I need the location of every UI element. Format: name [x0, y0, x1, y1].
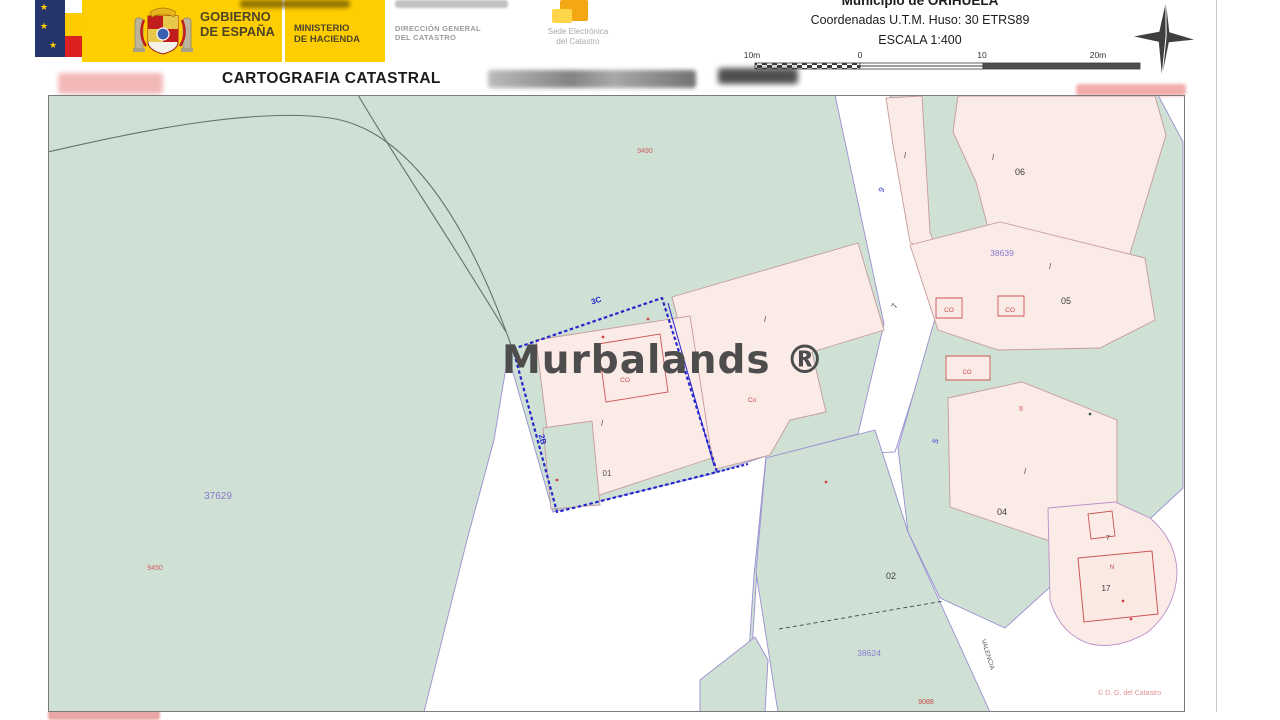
- star-icon: ★: [49, 41, 57, 50]
- map-marker-dot: [647, 318, 650, 321]
- coordinates-line: Coordenadas U.T.M. Huso: 30 ETRS89: [740, 13, 1100, 27]
- redaction-strip: [395, 0, 508, 8]
- scale-tick: 0: [858, 50, 863, 60]
- eu-flag-fragment: ★ ★ ★: [35, 0, 65, 57]
- spain-coat-of-arms: [132, 2, 194, 62]
- redaction-pink: [58, 73, 163, 94]
- star-icon: ★: [40, 3, 48, 12]
- map-marker-dot: [556, 479, 559, 482]
- map-label: 04: [997, 507, 1007, 517]
- document-title: CARTOGRAFIA CATASTRAL: [222, 70, 441, 88]
- watermark: Murbalands ®: [502, 338, 825, 383]
- municipio-title: Municipio de ORIHUELA: [740, 0, 1100, 8]
- map-label: CO: [963, 370, 972, 376]
- star-icon: ★: [40, 22, 48, 31]
- map-label: 05: [1061, 296, 1071, 306]
- flag-red-square: [65, 36, 82, 57]
- flag-yellow-square: [65, 13, 82, 36]
- ministerio-text: MINISTERIO DE HACIENDA: [294, 23, 360, 45]
- gobierno-espana-logo: ★ ★ ★ GOBIERNO DE ESPAÑA MINISTERIO: [35, 0, 385, 62]
- map-label: 17: [1102, 584, 1111, 593]
- logo-yellow-panel: GOBIERNO DE ESPAÑA MINISTERIO DE HACIEND…: [82, 0, 385, 62]
- scale-tick: 20m: [1090, 50, 1107, 60]
- map-label: 01: [603, 469, 612, 478]
- map-marker-dot: [825, 481, 828, 484]
- cadastral-map: 3762938639386240605040201177949094509088…: [48, 95, 1185, 712]
- building-17-outline: [1078, 551, 1158, 622]
- scale-line: ESCALA 1:400: [740, 33, 1100, 47]
- sede-logo-icon-overlay: [552, 9, 572, 23]
- map-label: CO: [944, 307, 954, 314]
- redaction-gray: [488, 70, 696, 88]
- sede-text: Sede Electrónica del Catastro: [528, 27, 628, 47]
- map-attribution: © D. G. del Catastro: [1098, 690, 1161, 697]
- map-label: 38639: [990, 248, 1014, 258]
- map-label: 9490: [637, 148, 653, 155]
- sede-electronica-block: Sede Electrónica del Catastro: [528, 0, 628, 60]
- map-marker-dot: [1089, 413, 1092, 416]
- cadastral-document-page: { "header": { "gobierno_line1": "GOBIERN…: [0, 0, 1280, 720]
- map-label: Co: [748, 397, 757, 404]
- map-label: 37629: [204, 491, 232, 502]
- scale-tick: 10m: [744, 50, 761, 60]
- map-label: 7: [1106, 535, 1110, 542]
- gobierno-text: GOBIERNO DE ESPAÑA: [200, 9, 275, 39]
- map-label: 9450: [147, 565, 163, 572]
- map-label: 38624: [857, 648, 881, 658]
- map-label: II: [1019, 406, 1023, 413]
- selected-parcel-courtyard: [543, 421, 600, 509]
- map-label: CO: [1005, 307, 1015, 314]
- map-label: 06: [1015, 167, 1025, 177]
- logo-divider: [282, 0, 285, 62]
- map-marker-dot: [1130, 618, 1133, 621]
- map-marker-dot: [1122, 600, 1125, 603]
- compass-north-arrow: [1128, 0, 1200, 80]
- map-label: 02: [886, 571, 896, 581]
- map-label: 9088: [918, 699, 934, 706]
- redaction-dark: [718, 68, 798, 84]
- page-border-line: [1216, 0, 1217, 712]
- scale-tick: 10: [977, 50, 986, 60]
- map-label: N: [1110, 565, 1114, 571]
- map-label: VALENCIA: [979, 638, 995, 671]
- scale-bar: 10m 0 10 20m: [742, 50, 1142, 74]
- redaction-strip: [240, 0, 350, 8]
- direccion-general-catastro-block: DIRECCIÓN GENERAL DEL CATASTRO: [395, 0, 515, 60]
- direccion-text: DIRECCIÓN GENERAL DEL CATASTRO: [395, 24, 481, 42]
- scale-bar-graphic: [742, 62, 1142, 72]
- construction-box: [946, 356, 990, 380]
